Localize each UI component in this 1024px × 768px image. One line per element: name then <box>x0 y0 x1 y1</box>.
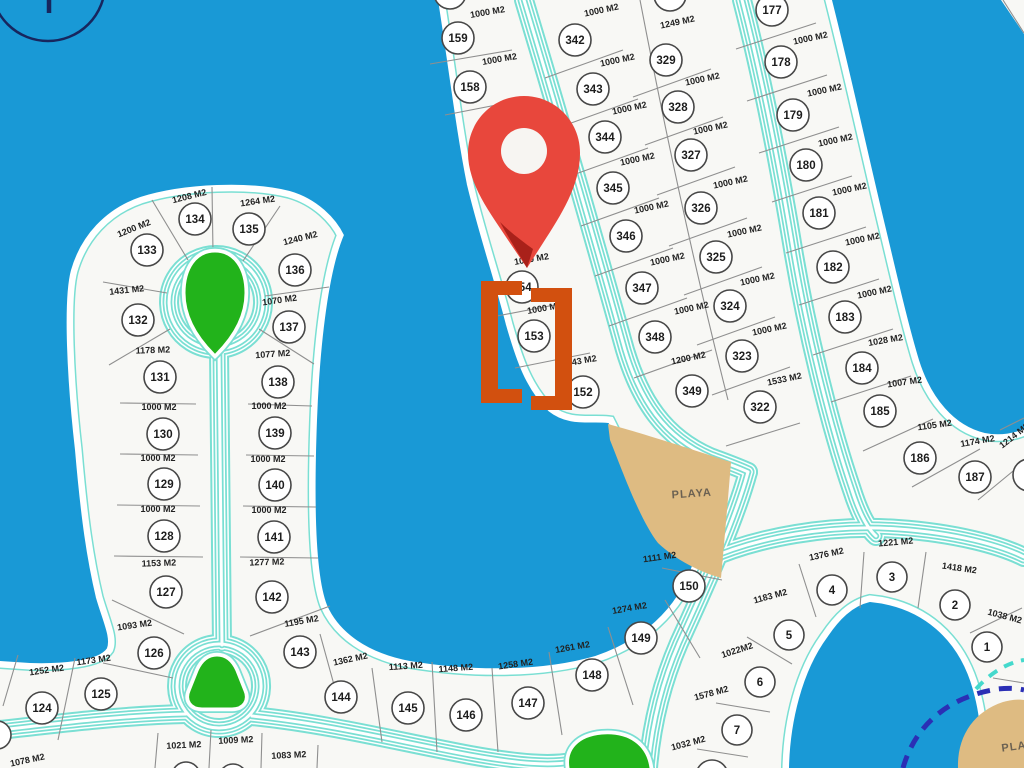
lot-area-label: 1000 M2 <box>712 174 748 191</box>
lot-number: 133 <box>137 245 156 257</box>
lot-number: 126 <box>144 648 163 660</box>
lot-area-label: 1000 M2 <box>141 402 176 412</box>
lot-number: 184 <box>852 363 872 375</box>
lot-number: 183 <box>835 312 854 324</box>
lot-parcel-5: 51183 M2 <box>752 587 804 650</box>
lot-parcel-324: 3241000 M2 <box>714 271 776 322</box>
lot-parcel-138: 1381077 M2 <box>255 348 294 398</box>
lot-area-label: 1000 M2 <box>481 51 517 67</box>
lot-number: 324 <box>720 301 740 313</box>
lot-number: 144 <box>331 692 351 704</box>
lot-number: 129 <box>154 479 173 491</box>
lot-number: 152 <box>573 387 592 399</box>
lot-number: 148 <box>582 670 602 682</box>
lot-area-label: 1249 M2 <box>659 14 695 31</box>
lot-number: 326 <box>691 203 710 215</box>
lot-number: 180 <box>796 160 815 172</box>
lot-area-label: 1028 M2 <box>867 332 903 348</box>
lot-parcel-182: 1821000 M2 <box>817 231 881 283</box>
lot-area-label: 1221 M2 <box>878 536 914 549</box>
lot-parcel-180: 1801000 M2 <box>790 132 854 181</box>
lot-parcel-141: 1411000 M2 <box>251 505 290 553</box>
edge-area-label: 1021 M2 <box>166 739 202 751</box>
lot-area-label: 1431 M2 <box>109 283 145 297</box>
lot-parcel-322: 3221533 M2 <box>744 371 803 423</box>
edge-area-label: 1009 M2 <box>218 734 254 746</box>
lot-number: 137 <box>279 322 298 334</box>
lot-parcel-129: 1291000 M2 <box>140 453 180 500</box>
lot-number: 178 <box>771 57 791 69</box>
lot-parcel-185: 1851007 M2 <box>864 375 923 427</box>
lot-area-label: 1105 M2 <box>917 418 953 433</box>
lot-number: 131 <box>150 372 170 384</box>
lot-parcel-347: 3471000 M2 <box>626 251 686 304</box>
lot-number: 325 <box>706 252 726 264</box>
lot-number: 327 <box>681 150 700 162</box>
lot-number: 139 <box>265 428 284 440</box>
lot-area-label: 1200 M2 <box>670 350 706 367</box>
lot-parcel-327: 3271000 M2 <box>675 120 729 171</box>
lot-area-label: 1264 M2 <box>240 194 276 209</box>
lot-area-label: 1000 M2 <box>806 82 842 99</box>
lot-area-label: 1578 M2 <box>693 684 729 703</box>
lot-number: 124 <box>32 703 52 715</box>
lot-area-label: 1000 M2 <box>251 401 286 411</box>
lot-parcel-135: 1351264 M2 <box>233 194 276 245</box>
lot-parcel-348: 3481000 M2 <box>639 300 710 353</box>
lot-number: 2 <box>952 600 958 612</box>
lot-parcel-345: 3451000 M2 <box>597 151 656 204</box>
lot-area-label: 1000 M2 <box>673 300 709 317</box>
lot-area-label: 1240 M2 <box>282 229 318 247</box>
lot-parcel-1: 11038 M2 <box>972 607 1023 662</box>
shore-dashed-line <box>976 660 1024 689</box>
lot-area-label: 1000 M2 <box>619 151 655 168</box>
lot-number: 128 <box>154 531 174 543</box>
lot-area-label: 1000 M2 <box>692 120 728 137</box>
lot-area-label: 1362 M2 <box>332 651 368 668</box>
lot-number: 346 <box>616 231 635 243</box>
lot-parcel-4: 41376 M2 <box>808 546 847 605</box>
lot-number: 4 <box>829 585 836 597</box>
lot-parcel-177: 177 <box>756 0 788 26</box>
lot-area-label: 1007 M2 <box>887 375 923 390</box>
lot-parcel-342: 3421000 M2 <box>559 2 620 56</box>
lot-number: 328 <box>668 102 688 114</box>
lot-area-label: 1000 M2 <box>856 284 892 301</box>
lot-area-label: 1000 M2 <box>817 132 853 149</box>
pond-bottom-right <box>790 603 979 768</box>
lot-number: 322 <box>750 402 769 414</box>
lot-number: 179 <box>783 110 802 122</box>
lot-area-label: 1277 M2 <box>249 556 284 567</box>
lot-number: 329 <box>656 55 675 67</box>
lot-area-label: 1000 M2 <box>649 251 685 268</box>
lot-number: 345 <box>603 183 623 195</box>
lot-area-label: 1000 M2 <box>726 223 762 240</box>
lot-parcel-136: 1361240 M2 <box>279 229 318 286</box>
lot-number: 342 <box>565 35 584 47</box>
lot-number: 125 <box>91 689 111 701</box>
lot-area-label: 1000 M2 <box>251 505 286 515</box>
lot-number: 187 <box>965 472 984 484</box>
lot-number: 147 <box>518 698 537 710</box>
lot-parcel-130: 1301000 M2 <box>141 402 179 450</box>
map-canvas: 1331200 M21341208 M21351264 M21361240 M2… <box>0 0 1024 768</box>
lot-parcel-134: 1341208 M2 <box>171 187 211 235</box>
lot-parcel-126: 1261093 M2 <box>117 618 170 669</box>
lot-number: 143 <box>290 647 309 659</box>
lot-parcel-145: 1451113 M2 <box>388 660 424 724</box>
lot-area-label: 1000 M2 <box>633 199 669 216</box>
lot-number: 323 <box>732 351 751 363</box>
lot-number: 136 <box>285 265 304 277</box>
lot-number: 344 <box>595 132 615 144</box>
lot-area-label: 1153 M2 <box>141 557 176 568</box>
lot-parcel-346: 3461000 M2 <box>610 199 670 252</box>
lot-parcel-158: 1581000 M2 <box>454 51 518 103</box>
lot-number: 140 <box>265 480 284 492</box>
lot-number: 5 <box>786 630 793 642</box>
edge-area-label: 1078 M2 <box>9 752 45 768</box>
lot-parcel-184: 1841028 M2 <box>846 332 904 384</box>
lot-parcel-125: 1251173 M2 <box>76 653 117 710</box>
lot-parcel-328: 3281000 M2 <box>662 71 721 123</box>
lot-number: 186 <box>910 453 929 465</box>
lot-parcel-2: 21418 M2 <box>940 561 977 620</box>
lot-area-label: 1000 M2 <box>831 181 867 198</box>
lot-area-label: 1077 M2 <box>255 348 291 360</box>
lot-number: 185 <box>870 406 890 418</box>
lot-number: 145 <box>398 703 418 715</box>
lot-number: 127 <box>156 587 175 599</box>
lot-parcel-128: 1281000 M2 <box>140 504 180 552</box>
lot-number: 3 <box>889 572 895 584</box>
lot-parcel-159: 1591000 M2 <box>442 4 506 54</box>
edge-area-label: 1083 M2 <box>271 749 307 761</box>
lot-number: 130 <box>153 429 172 441</box>
lot-number: 158 <box>460 82 480 94</box>
lot-parcel-3: 31221 M2 <box>877 536 914 592</box>
plat-map: 1331200 M21341208 M21351264 M21361240 M2… <box>0 0 1024 768</box>
lot-number: 177 <box>762 5 781 17</box>
lot-parcel-183: 1831000 M2 <box>829 284 893 333</box>
lot-parcel-344: 3441000 M2 <box>589 100 648 153</box>
lot-number: 159 <box>448 33 467 45</box>
lot-area-label: 1183 M2 <box>752 587 788 606</box>
lot-area-label: 1195 M2 <box>284 613 320 629</box>
lot-parcel-132: 1321431 M2 <box>109 283 154 336</box>
lot-number: 347 <box>632 283 651 295</box>
lot-number: 349 <box>682 386 701 398</box>
lot-number: 348 <box>645 332 665 344</box>
lot-parcel-142: 1421277 M2 <box>249 556 288 613</box>
lot-area-label: 1000 M2 <box>611 100 647 117</box>
lot-parcel-133: 1331200 M2 <box>116 217 163 266</box>
lot-area-label: 1376 M2 <box>808 546 844 563</box>
lot-parcel-139: 1391000 M2 <box>251 401 291 449</box>
lot-number: 132 <box>128 315 147 327</box>
lot-area-label: 1000 M2 <box>599 52 635 69</box>
lot-parcel-140: 1401000 M2 <box>250 454 291 501</box>
lot-area-label: 1000 M2 <box>140 504 175 514</box>
lot-area-label: 1000 M2 <box>792 30 828 47</box>
lot-number: 146 <box>456 710 475 722</box>
lot-number: 138 <box>268 377 288 389</box>
lot-number: 153 <box>524 331 543 343</box>
lot-number: 343 <box>583 84 602 96</box>
lot-parcel-143: 1431195 M2 <box>284 613 320 668</box>
lot-number: 182 <box>823 262 842 274</box>
lot-area-label: 1000 M2 <box>469 4 505 20</box>
lot-number: 150 <box>679 581 698 593</box>
lot-number: 6 <box>757 677 763 689</box>
lot-number: 135 <box>239 224 259 236</box>
lot-parcel-343: 3431000 M2 <box>577 52 636 105</box>
lot-number: 149 <box>631 633 650 645</box>
lot-area-label: 1418 M2 <box>941 561 977 576</box>
lot-parcel-325: 3251000 M2 <box>700 223 763 273</box>
lot-area-label: 1178 M2 <box>135 344 170 355</box>
lot-parcel-144: 1441362 M2 <box>325 651 369 713</box>
lot-area-label: 1000 M2 <box>250 454 285 464</box>
lot-parcel-187: 1871174 M2 <box>959 433 995 493</box>
lot-area-label: 1093 M2 <box>117 618 153 633</box>
lot-area-label: 1000 M2 <box>583 2 619 19</box>
lot-parcel-181: 1811000 M2 <box>803 181 868 229</box>
lot-parcel-179: 1791000 M2 <box>777 82 843 131</box>
lot-parcel-329: 3291249 M2 <box>650 14 696 76</box>
lot-parcel-323: 3231000 M2 <box>726 321 788 372</box>
lot-parcel-131: 1311178 M2 <box>135 344 176 393</box>
lot-area-label: 1000 M2 <box>844 231 880 248</box>
lot-parcel-186: 1861105 M2 <box>904 418 952 474</box>
lot-area-label: 1022M2 <box>720 640 754 660</box>
lot-parcel-349: 3491200 M2 <box>670 350 708 407</box>
lot-number: 7 <box>734 725 740 737</box>
lot-area-label: 1174 M2 <box>960 433 996 449</box>
lot-number: 1 <box>984 642 991 654</box>
lot-parcel-127: 1271153 M2 <box>141 557 182 608</box>
lot-area-label: 1000 M2 <box>684 71 720 88</box>
lot-number: 181 <box>809 208 829 220</box>
lot-area-label: 1000 M2 <box>140 453 175 463</box>
lot-number: 142 <box>262 592 281 604</box>
lot-number: 134 <box>185 214 205 226</box>
lot-number: 141 <box>264 532 284 544</box>
